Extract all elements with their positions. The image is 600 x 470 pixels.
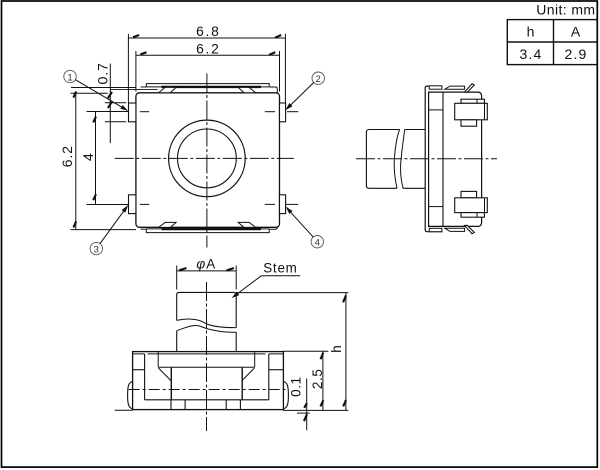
- svg-text:6.2: 6.2: [196, 42, 220, 57]
- svg-text:4: 4: [315, 238, 320, 249]
- svg-text:h: h: [527, 24, 535, 40]
- svg-text:0.7: 0.7: [95, 62, 111, 84]
- svg-text:h: h: [329, 345, 344, 353]
- svg-text:2: 2: [316, 74, 321, 85]
- svg-text:φA: φA: [196, 257, 216, 272]
- svg-text:4: 4: [81, 153, 97, 161]
- svg-text:3: 3: [94, 244, 99, 255]
- svg-text:2.9: 2.9: [564, 46, 587, 62]
- svg-text:A: A: [571, 24, 581, 40]
- svg-text:Unit: mm: Unit: mm: [536, 2, 595, 18]
- svg-text:6.2: 6.2: [60, 145, 76, 167]
- svg-text:6.8: 6.8: [196, 24, 220, 39]
- svg-text:1: 1: [67, 72, 72, 83]
- svg-text:2.5: 2.5: [310, 369, 325, 390]
- svg-text:0.1: 0.1: [289, 376, 304, 397]
- svg-text:Stem: Stem: [263, 261, 297, 276]
- svg-text:3.4: 3.4: [519, 46, 542, 62]
